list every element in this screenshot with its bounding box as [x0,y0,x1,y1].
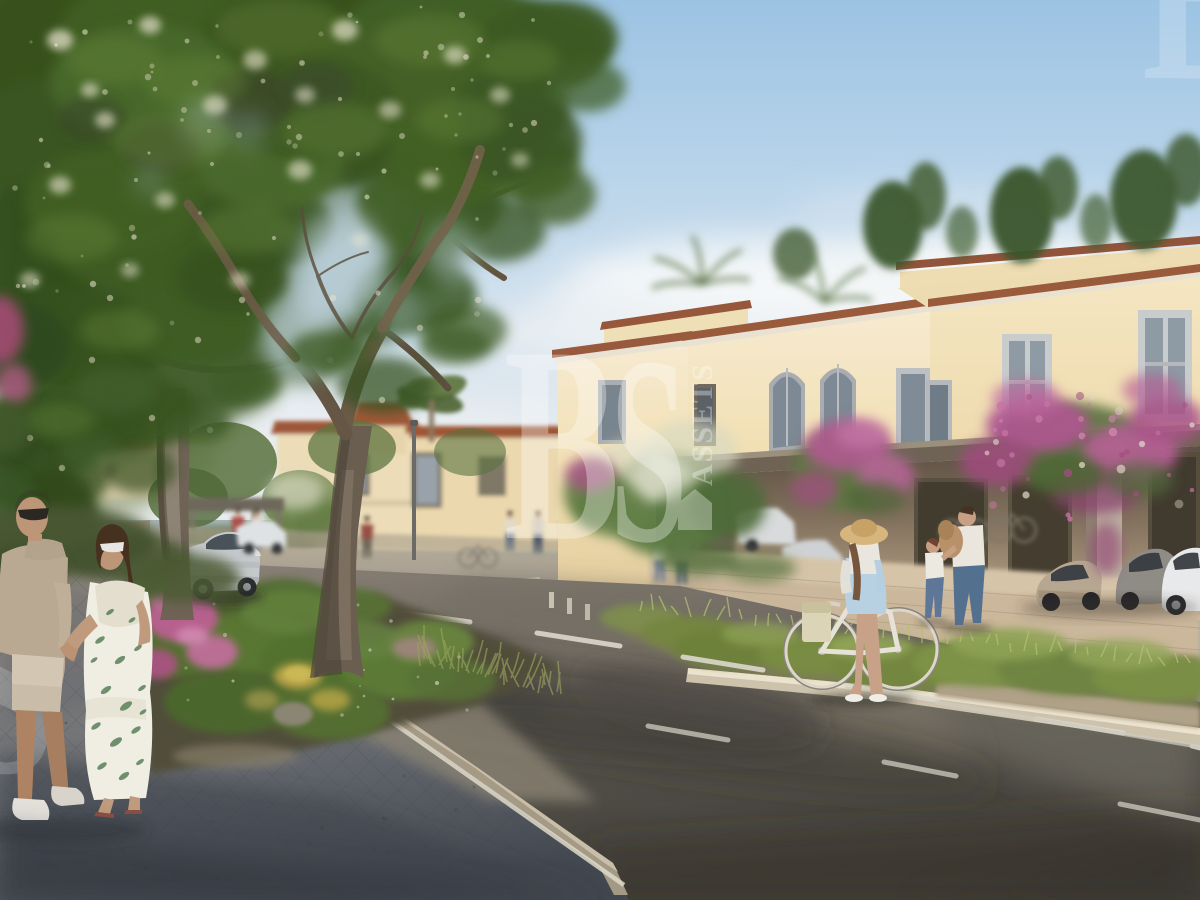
svg-text:S: S [610,303,688,599]
svg-text:ASSETS: ASSETS [686,362,719,486]
svg-text:B: B [504,289,620,599]
svg-text:B: B [1142,0,1200,131]
